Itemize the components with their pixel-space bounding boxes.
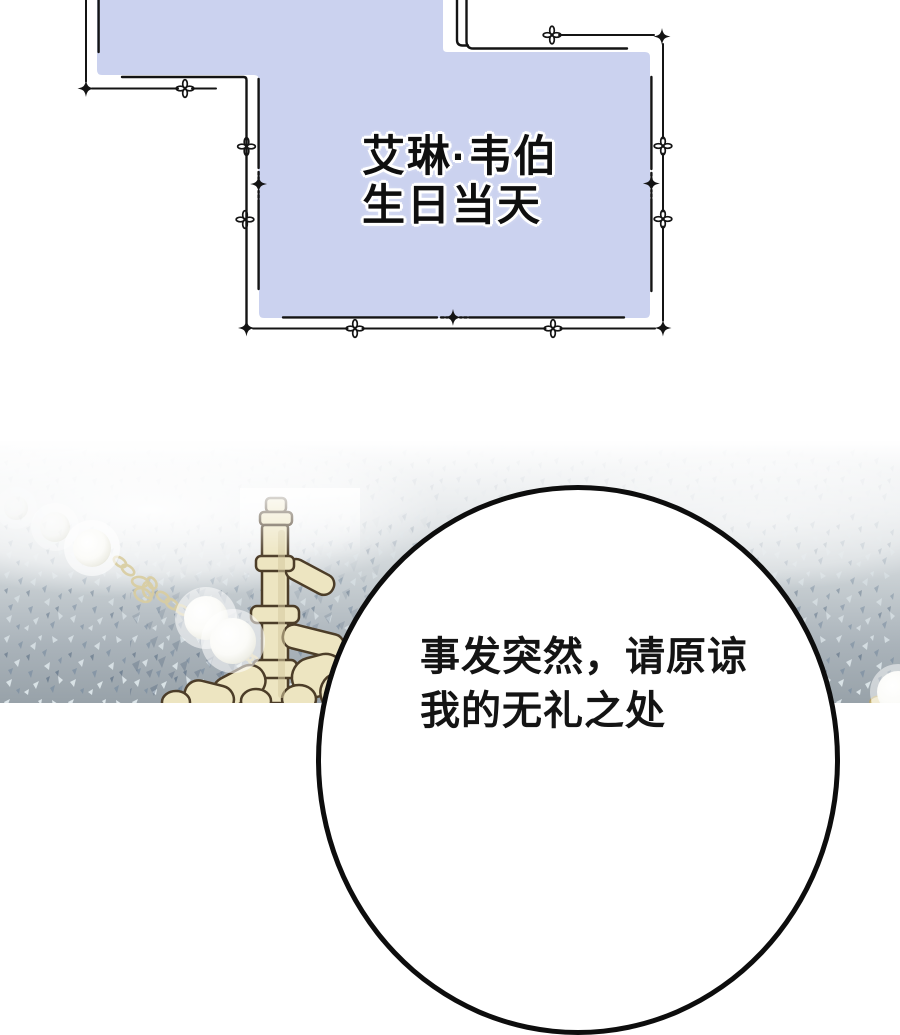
speech-bubble [316,485,840,1035]
comic-panel: 艾琳·韦伯 生日当天 [0,0,900,703]
pearl [201,609,265,673]
ornament-fade [240,488,360,558]
bubble-line-2: 我的无礼之处 [420,684,748,738]
caption-text: 艾琳·韦伯 生日当天 [362,133,558,231]
caption-line-2: 生日当天 [362,182,558,231]
caption-line-1: 艾琳·韦伯 [362,133,558,182]
speech-bubble-text: 事发突然，请原谅 我的无礼之处 [420,630,748,738]
bubble-line-1: 事发突然，请原谅 [420,630,748,684]
pearl [64,520,120,576]
